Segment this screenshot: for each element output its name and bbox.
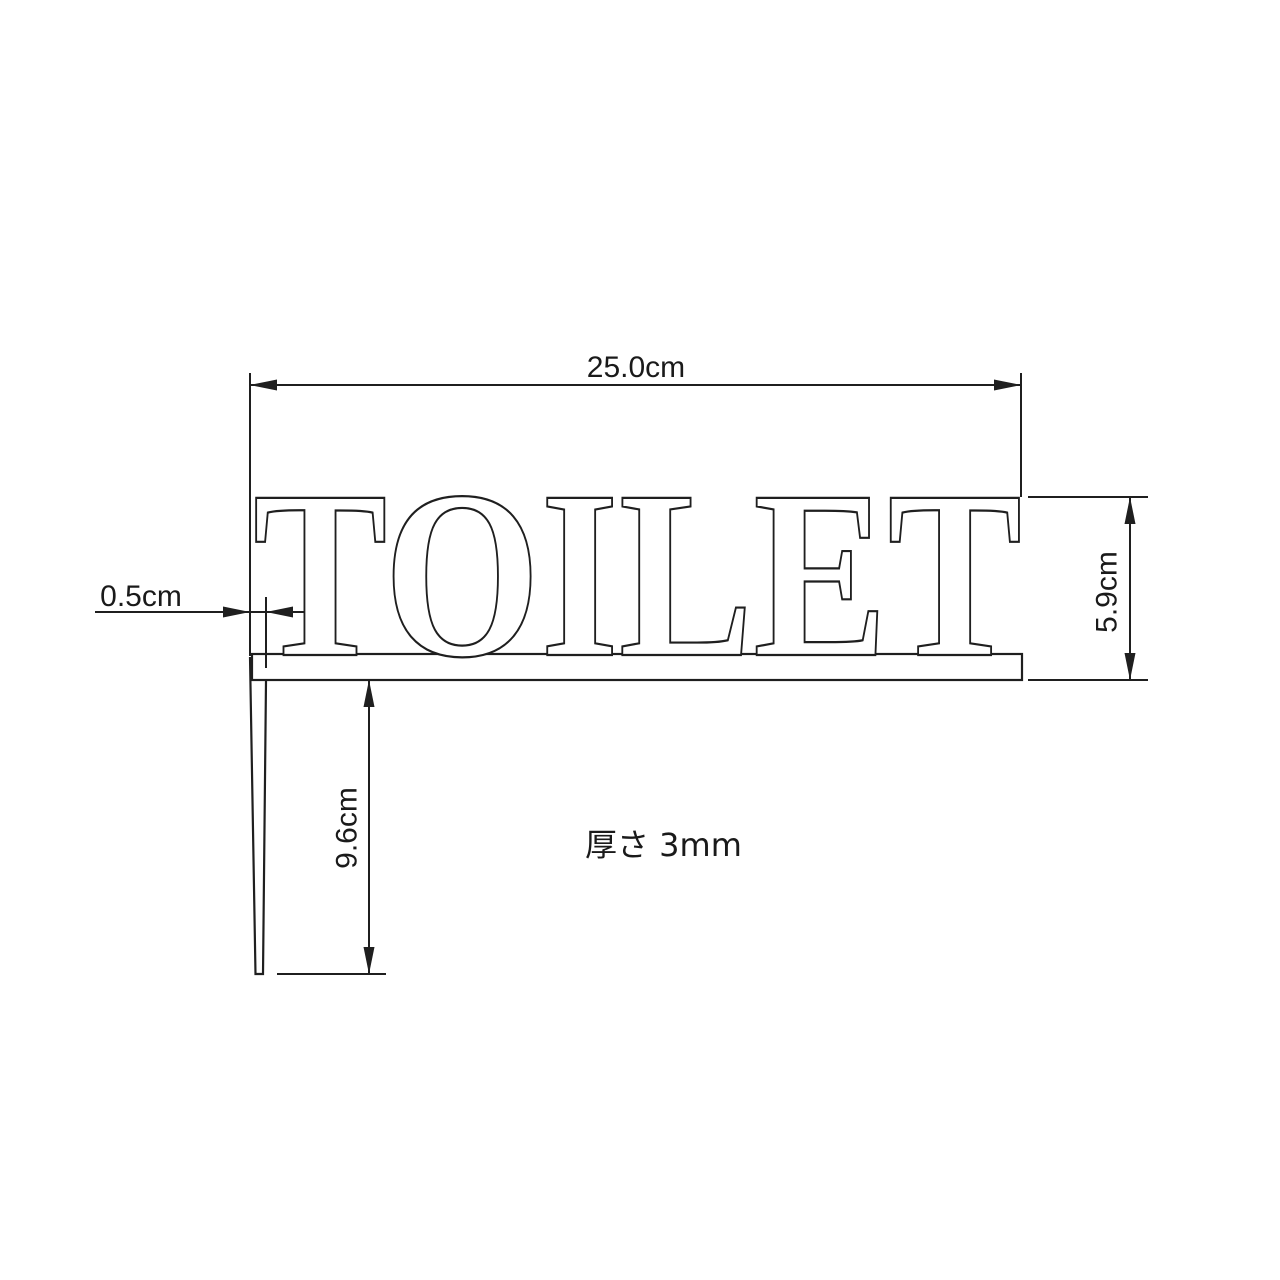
leg-length-arrow-down-icon [364,947,375,974]
technical-drawing-page: 25.0cm 0.5cm 5.9cm [0,0,1280,1280]
thickness-note: 厚さ 3mm [585,826,742,864]
leg-width-dimension-label: 0.5cm [100,580,182,613]
height-arrow-down-icon [1125,653,1136,680]
width-dimension-label: 25.0cm [587,351,685,384]
toilet-sign-dimensional-drawing: 25.0cm 0.5cm 5.9cm [0,0,1280,1280]
dimension-leg-length: 9.6cm [277,680,386,974]
width-arrow-left-icon [250,380,277,391]
leg-length-dimension-label: 9.6cm [331,787,364,869]
leg-width-arrow-left-icon [223,607,250,618]
sign-letters-text: TOILET [253,441,1022,707]
width-arrow-right-icon [994,380,1021,391]
height-arrow-up-icon [1125,497,1136,524]
dimension-height: 5.9cm [1028,497,1148,680]
height-dimension-label: 5.9cm [1091,551,1124,633]
